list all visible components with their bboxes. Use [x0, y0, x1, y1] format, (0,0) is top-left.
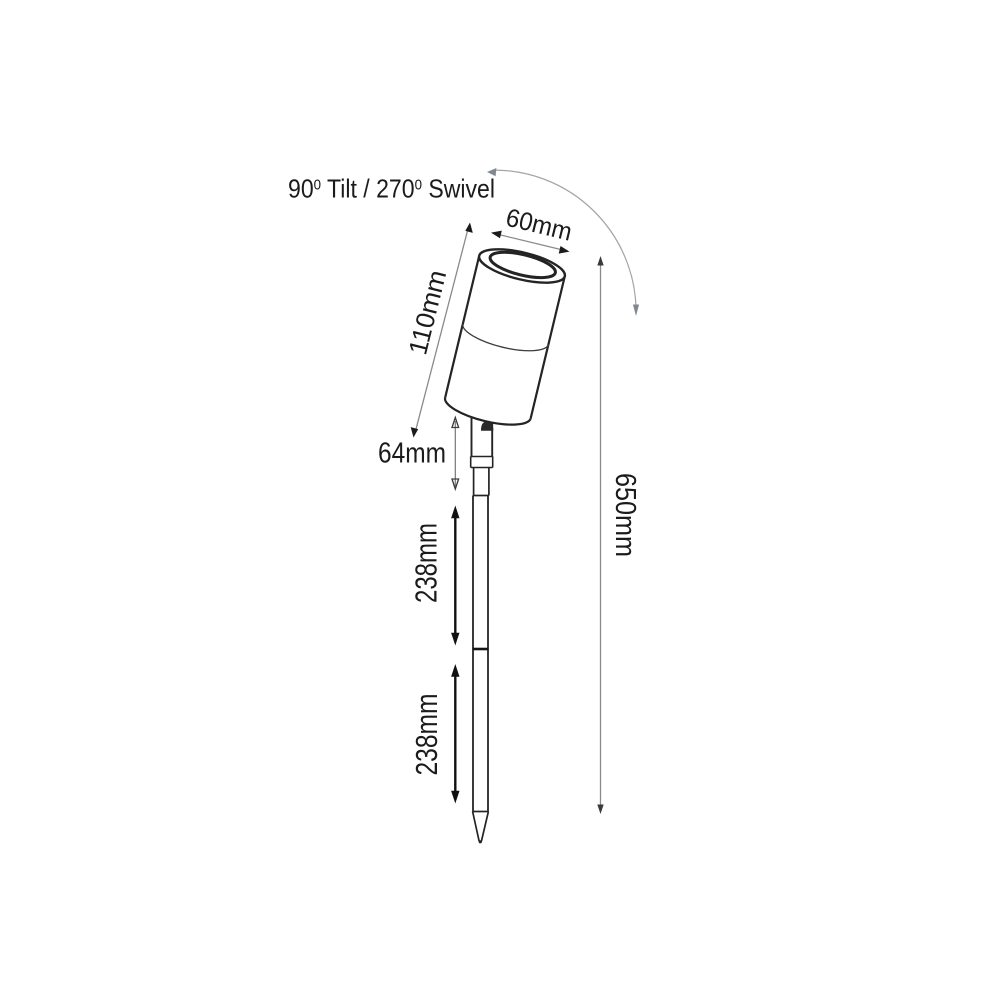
svg-text:650mm: 650mm [609, 473, 641, 557]
svg-text:64mm: 64mm [378, 438, 446, 470]
svg-text:238mm: 238mm [409, 694, 444, 776]
svg-text:238mm: 238mm [409, 523, 444, 603]
